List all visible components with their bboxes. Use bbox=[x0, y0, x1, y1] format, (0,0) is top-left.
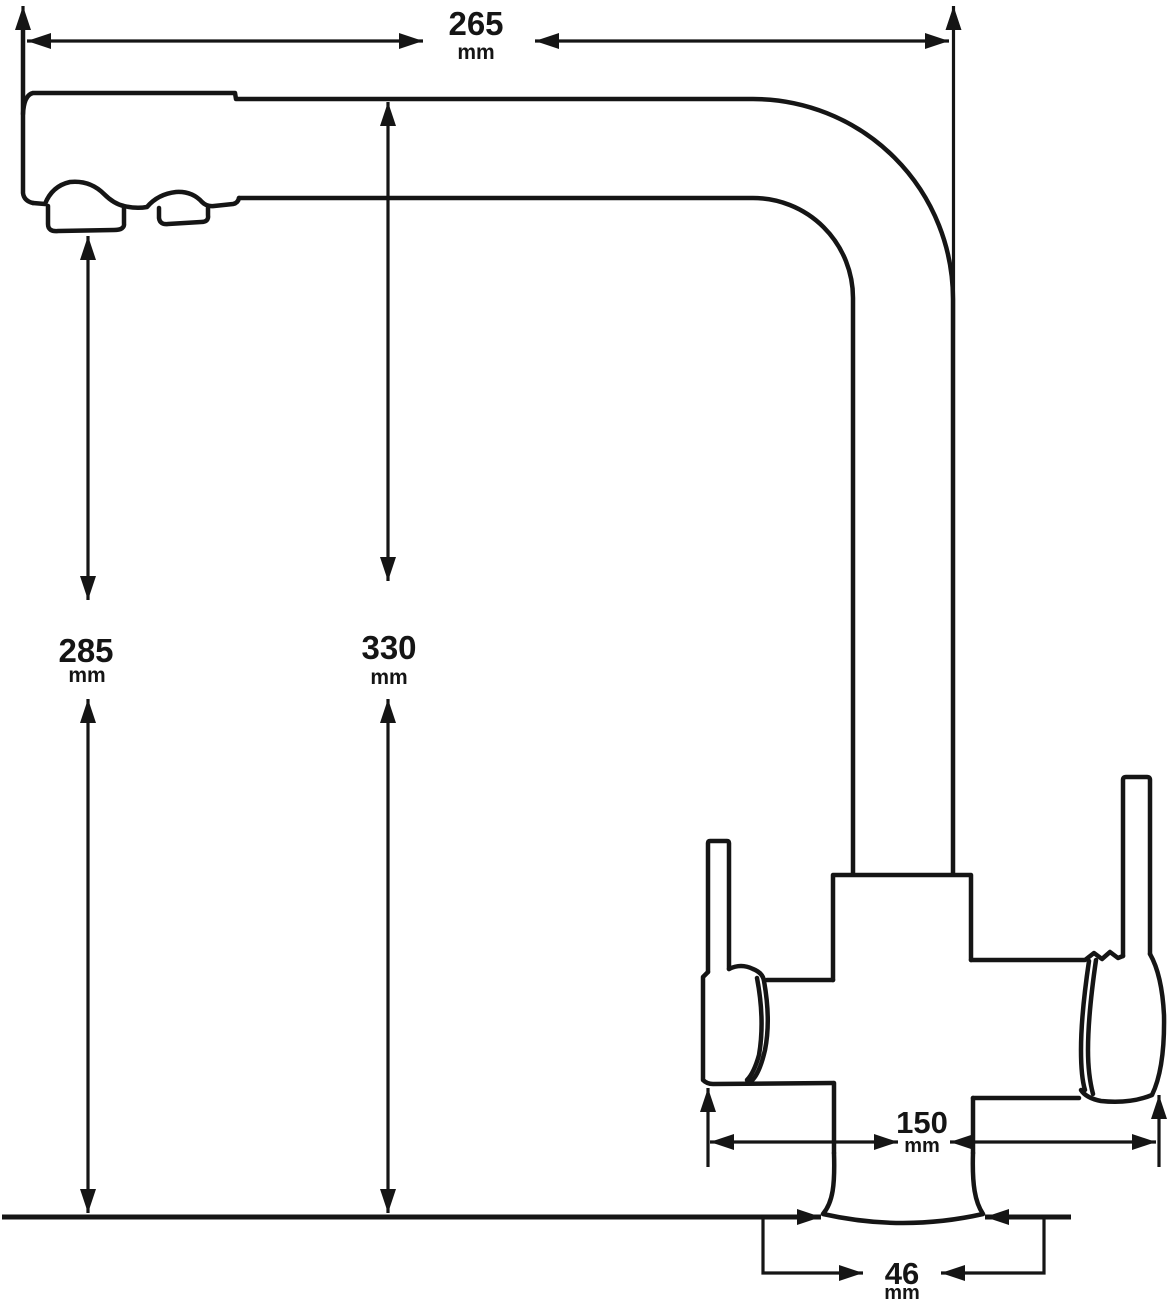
right-handle-lever bbox=[1123, 777, 1150, 956]
faucet-dimension-drawing: 265 mm 330 mm 285 mm 150 mm 46 mm bbox=[0, 0, 1168, 1300]
spout-head-underside bbox=[33, 182, 239, 208]
right-upper-ledge bbox=[971, 952, 1123, 960]
right-handle-base-inner-curve bbox=[1088, 960, 1096, 1094]
dim-265-value: 265 bbox=[448, 5, 503, 42]
body-shoulder bbox=[833, 875, 971, 980]
dim-265-unit: mm bbox=[457, 41, 494, 64]
dim-46-unit: mm bbox=[884, 1282, 920, 1300]
aerator-nozzle-secondary bbox=[159, 208, 208, 224]
dim-150-unit: mm bbox=[904, 1135, 940, 1157]
spout-top-and-riser-outer bbox=[23, 93, 953, 873]
dim-330-value: 330 bbox=[361, 629, 416, 666]
spout-bottom-and-riser-inner bbox=[239, 198, 853, 874]
dim-46-bracket-right bbox=[941, 1217, 1044, 1273]
dim-285-unit: mm bbox=[68, 664, 105, 687]
left-handle-lever bbox=[708, 841, 729, 972]
mounting-base bbox=[823, 1153, 983, 1223]
faucet-outline bbox=[23, 20, 1164, 1223]
aerator-nozzle-main bbox=[48, 206, 124, 231]
dim-330-unit: mm bbox=[370, 666, 407, 689]
dim-46-bracket-left bbox=[763, 1217, 863, 1273]
drawing-svg: 265 mm 330 mm 285 mm 150 mm 46 mm bbox=[0, 0, 1168, 1300]
